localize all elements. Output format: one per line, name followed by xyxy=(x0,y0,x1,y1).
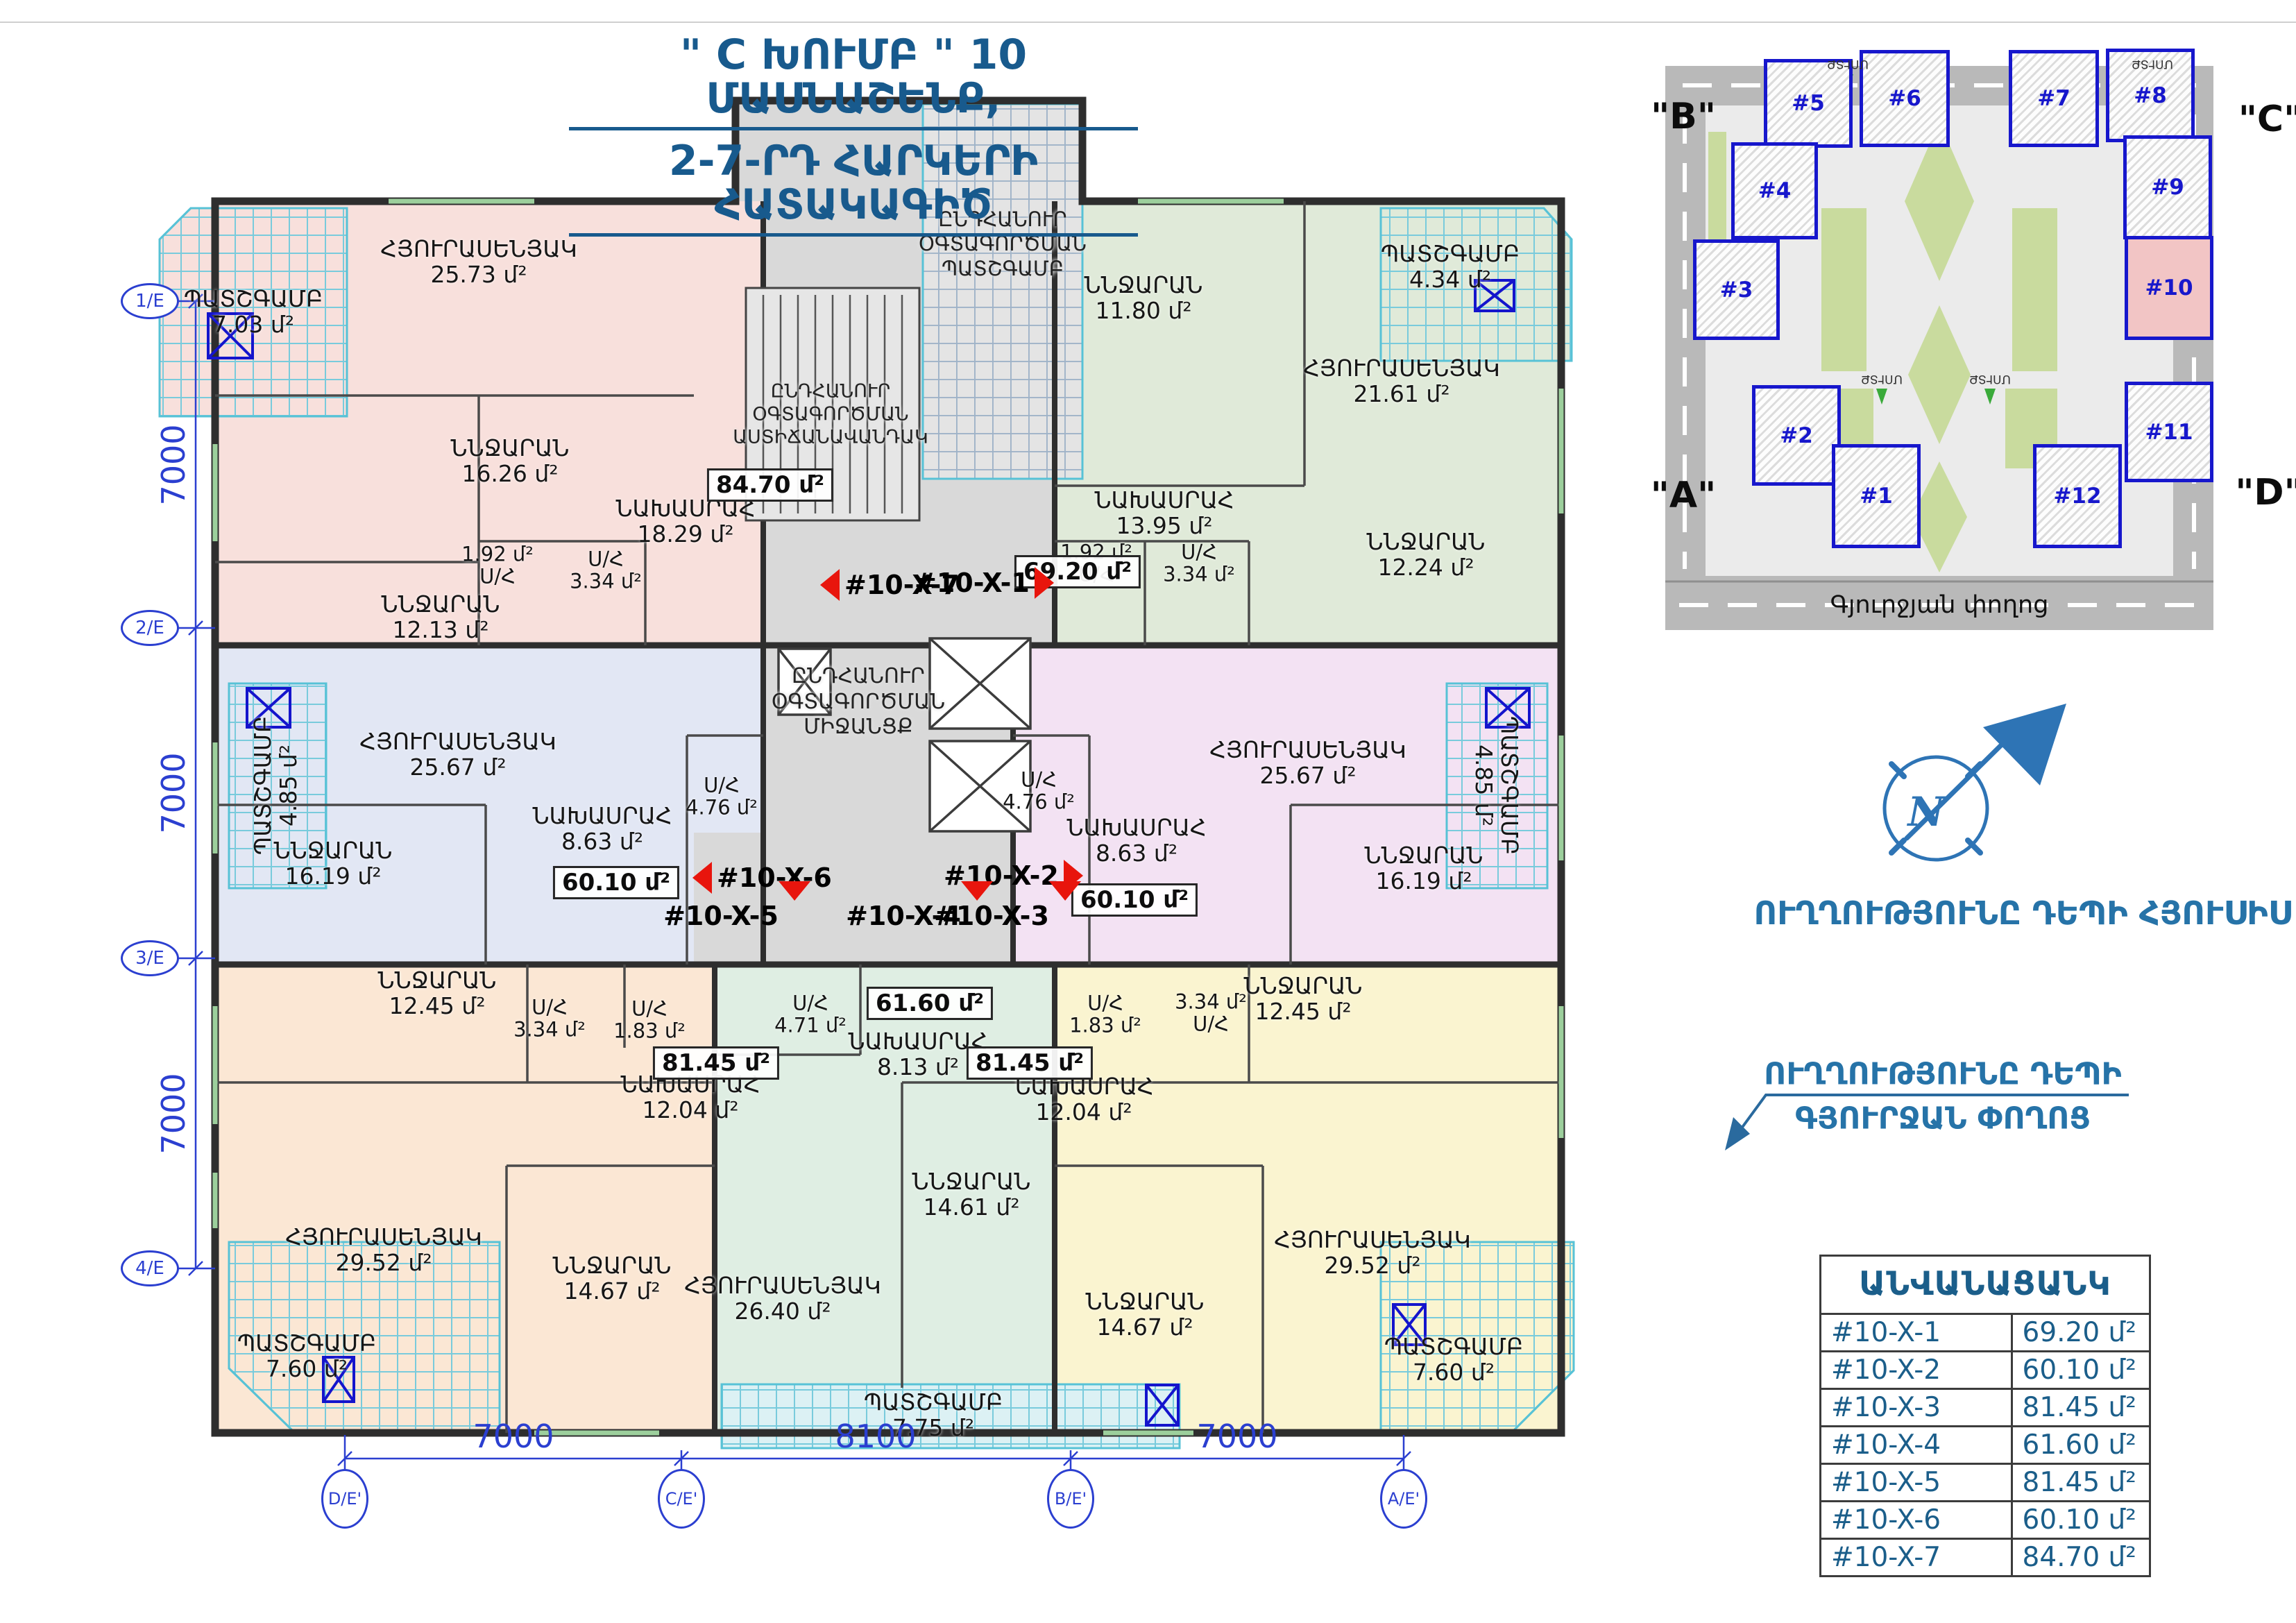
room-label: Ս/Հ1.83 մ² xyxy=(1069,992,1141,1037)
room-label: ՆՆՋԱՐԱՆ12.45 մ² xyxy=(1244,974,1363,1025)
dimension-label: 7000 xyxy=(473,1418,554,1455)
legend-apartment-id: #10-X-2 xyxy=(1821,1352,2012,1389)
room-label: ՊԱՏՇԳԱՄԲ7.60 մ² xyxy=(237,1331,376,1382)
room-label: ՊԱՏՇԳԱՄԲ4.85 մ² xyxy=(250,716,302,855)
north-direction-note: ՈՒՂՂՈՒԹՅՈՒՆԸ ԴԵՊԻ ՀՅՈՒՍԻՍ xyxy=(1754,894,2292,932)
apartment-total-area: 81.45 մ² xyxy=(967,1046,1093,1080)
room-label: Ս/Հ3.34 մ² xyxy=(570,548,642,593)
entrance-label: ՄՈՒՏՔ xyxy=(1861,372,1903,386)
room-label: ՆԱԽԱՍՐԱՀ8.63 մ² xyxy=(1067,815,1207,867)
axis-bubble: 3/E xyxy=(121,940,179,976)
site-building-5: #5 xyxy=(1764,59,1853,148)
arrow-down-icon xyxy=(779,881,810,931)
floor-plan-sheet: { "title": { "line1": "\" C ԽՈՒՄԲ \" 10 … xyxy=(0,0,2296,1623)
legend-apartment-area: 60.10 մ² xyxy=(2012,1502,2150,1539)
apartment-total-area: 60.10 մ² xyxy=(553,866,679,899)
sheet-title-line2: 2-7-ՐԴ ՀԱՐԿԵՐԻ ՀԱՏԱԿԱԳԻԾ xyxy=(569,139,1138,237)
entrance-label: ՄՈՒՏՔ xyxy=(1827,57,1869,71)
room-label: ՀՅՈՒՐԱՍԵՆՅԱԿ29.52 մ² xyxy=(285,1225,482,1276)
legend-row: #10-X-784.70 մ² xyxy=(1821,1539,2150,1577)
room-label: ՆՆՋԱՐԱՆ12.24 մ² xyxy=(1367,529,1486,581)
axis-bubble: A/E' xyxy=(1380,1469,1427,1529)
apartment-marker-x5: #10-X-5 xyxy=(663,901,810,931)
room-label: ՆՆՋԱՐԱՆ11.80 մ² xyxy=(1085,273,1203,324)
apartment-total-area: 84.70 մ² xyxy=(707,468,833,502)
room-label: ՆՆՋԱՐԱՆ16.19 մ² xyxy=(274,838,393,890)
legend-apartment-id: #10-X-1 xyxy=(1821,1314,2012,1352)
site-building-6: #6 xyxy=(1860,50,1950,147)
room-label: ՆՆՋԱՐԱՆ16.19 մ² xyxy=(1365,843,1483,894)
room-label: ՆՆՋԱՐԱՆ14.61 մ² xyxy=(912,1169,1031,1221)
room-label: ՊԱՏՇԳԱՄԲ7.03 մ² xyxy=(184,287,323,338)
room-label: Ս/Հ4.76 մ² xyxy=(686,774,758,819)
legend-row: #10-X-660.10 մ² xyxy=(1821,1502,2150,1539)
site-building-1: #1 xyxy=(1832,444,1921,548)
sheet-title: " C ԽՈՒՄԲ " 10 ՄԱՍՆԱՇԵՆՔ, 2-7-ՐԴ ՀԱՐԿԵՐԻ… xyxy=(569,33,1138,246)
compass-n-letter: N xyxy=(1906,788,1946,835)
room-label: Ս/Հ4.76 մ² xyxy=(1003,769,1075,814)
site-building-4: #4 xyxy=(1731,142,1818,239)
site-building-2: #2 xyxy=(1752,385,1841,486)
apartment-legend-table: ԱՆՎԱՆԱՑԱՆԿ #10-X-169.20 մ² #10-X-260.10 … xyxy=(1819,1255,2151,1577)
legend-apartment-area: 60.10 մ² xyxy=(2012,1352,2150,1389)
axis-bubble: 2/E xyxy=(121,610,179,646)
room-label: ՀՅՈՒՐԱՍԵՆՅԱԿ21.61 մ² xyxy=(1303,356,1500,407)
legend-apartment-area: 61.60 մ² xyxy=(2012,1427,2150,1464)
room-label: ՆՆՋԱՐԱՆ14.67 մ² xyxy=(1086,1289,1205,1341)
room-label: ՀՅՈՒՐԱՍԵՆՅԱԿ25.67 մ² xyxy=(359,729,556,781)
apartment-total-area: 61.60 մ² xyxy=(867,987,993,1020)
room-label: Ս/Հ1.83 մ² xyxy=(613,998,686,1043)
axis-bubble: 4/E xyxy=(121,1250,179,1286)
site-building-9: #9 xyxy=(2123,135,2212,239)
room-label: Ս/Հ4.71 մ² xyxy=(774,992,847,1037)
legend-row: #10-X-169.20 մ² xyxy=(1821,1314,2150,1352)
room-label: ՆՆՋԱՐԱՆ14.67 մ² xyxy=(553,1253,672,1305)
axis-bubble: C/E' xyxy=(658,1469,705,1529)
legend-row: #10-X-381.45 մ² xyxy=(1821,1389,2150,1427)
room-label: ՊԱՏՇԳԱՄԲ7.60 մ² xyxy=(1384,1334,1523,1386)
axis-bubble: B/E' xyxy=(1047,1469,1094,1529)
legend-apartment-area: 81.45 մ² xyxy=(2012,1464,2150,1502)
compass-icon: N xyxy=(1885,704,2066,860)
site-building-12: #12 xyxy=(2033,444,2122,548)
legend-apartment-area: 81.45 մ² xyxy=(2012,1389,2150,1427)
room-label: ՆՆՋԱՐԱՆ12.45 մ² xyxy=(378,968,497,1019)
entrance-label: ՄՈՒՏՔ xyxy=(2132,57,2173,71)
room-label: Ս/Հ3.34 մ² xyxy=(513,996,586,1042)
site-building-11: #11 xyxy=(2125,382,2213,482)
apartment-marker-x1: #10-X-1 xyxy=(915,567,1054,599)
entrance-label: ՄՈՒՏՔ xyxy=(1969,372,2011,386)
apartment-total-area: 60.10 մ² xyxy=(1071,883,1198,917)
room-label: Ս/Հ3.34 մ² xyxy=(1163,541,1235,586)
room-label: Ս/Հ1.92 մ² xyxy=(461,543,534,588)
sheet-title-line1: " C ԽՈՒՄԲ " 10 ՄԱՍՆԱՇԵՆՔ, xyxy=(569,33,1138,130)
room-label: ՆԱԽԱՍՐԱՀ18.29 մ² xyxy=(616,496,756,547)
dimension-label: 7000 xyxy=(1196,1418,1277,1455)
common-stairs-label: ԸՆԴՀԱՆՈՒՐ ՕԳՏԱԳՈՐԾՄԱՆ ԱՍՏԻՃԱՆԱՎԱՆԴԱԿ xyxy=(733,381,928,450)
room-label: ՊԱՏՇԳԱՄԲ4.85 մ² xyxy=(1470,716,1522,855)
street-direction-note-line1: ՈՒՂՂՈՒԹՅՈՒՆԸ ԴԵՊԻ xyxy=(1764,1057,2122,1092)
site-building-10-highlighted: #10 xyxy=(2125,236,2213,340)
room-label: ՀՅՈՒՐԱՍԵՆՅԱԿ25.67 մ² xyxy=(1209,738,1406,789)
room-label: ՆՆՋԱՐԱՆ12.13 մ² xyxy=(382,592,500,643)
dimension-label: 8100 xyxy=(835,1418,916,1455)
common-corridor-label: ԸՆԴՀԱՆՈՒՐ ՕԳՏԱԳՈՐԾՄԱՆ ՄԻՋԱՆՑՔ xyxy=(772,664,945,740)
legend-row: #10-X-260.10 մ² xyxy=(1821,1352,2150,1389)
legend-row: #10-X-581.45 մ² xyxy=(1821,1464,2150,1502)
legend-apartment-area: 84.70 մ² xyxy=(2012,1539,2150,1577)
axis-bubble: D/E' xyxy=(321,1469,368,1529)
site-building-3: #3 xyxy=(1693,239,1780,340)
dimension-label: 7000 xyxy=(155,424,192,505)
legend-apartment-id: #10-X-6 xyxy=(1821,1502,2012,1539)
legend-apartment-id: #10-X-5 xyxy=(1821,1464,2012,1502)
room-label: Ս/Հ3.34 մ² xyxy=(1175,991,1247,1036)
room-label: ՀՅՈՒՐԱՍԵՆՅԱԿ26.40 մ² xyxy=(684,1273,881,1325)
dimension-label: 7000 xyxy=(155,752,192,833)
room-label: ՆԱԽԱՍՐԱՀ12.04 մ² xyxy=(1014,1074,1154,1125)
legend-apartment-id: #10-X-3 xyxy=(1821,1389,2012,1427)
arrow-left-icon xyxy=(820,569,840,601)
room-label: ՀՅՈՒՐԱՍԵՆՅԱԿ25.73 մ² xyxy=(380,237,577,288)
district-label-a: "A" xyxy=(1651,475,1716,516)
apartment-marker-x3: #10-X-3 xyxy=(934,901,1081,931)
arrow-down-icon xyxy=(1049,881,1081,931)
legend-apartment-area: 69.20 մ² xyxy=(2012,1314,2150,1352)
apartment-marker-x6: #10-X-6 xyxy=(692,862,832,894)
street-direction-note-line2: ԳՅՈՒՐՋԱՆ ՓՈՂՈՑ xyxy=(1795,1101,2091,1137)
north-arrow-icon xyxy=(1983,704,2066,785)
room-label: ՆԱԽԱՍՐԱՀ12.04 մ² xyxy=(621,1072,760,1123)
street-name-label: Գյուրջյան փողոց xyxy=(1830,591,2049,619)
district-label-d: "D" xyxy=(2235,472,2296,513)
legend-table-title: ԱՆՎԱՆԱՑԱՆԿ xyxy=(1821,1256,2150,1314)
room-label: ՆՆՋԱՐԱՆ16.26 մ² xyxy=(451,436,570,487)
arrow-right-icon xyxy=(1035,567,1054,599)
district-label-c: "C" xyxy=(2238,99,2296,140)
district-label-b: "B" xyxy=(1651,96,1716,137)
dimension-label: 7000 xyxy=(155,1073,192,1154)
room-label: ՀՅՈՒՐԱՍԵՆՅԱԿ29.52 մ² xyxy=(1274,1227,1471,1279)
arrow-left-icon xyxy=(692,862,712,894)
room-label: ՆԱԽԱՍՐԱՀ8.63 մ² xyxy=(533,804,672,855)
room-label: ՊԱՏՇԳԱՄԲ4.34 մ² xyxy=(1381,241,1520,293)
site-building-7: #7 xyxy=(2009,50,2099,147)
legend-apartment-id: #10-X-4 xyxy=(1821,1427,2012,1464)
apartment-total-area: 81.45 մ² xyxy=(653,1046,779,1080)
room-label: ՆԱԽԱՍՐԱՀ13.95 մ² xyxy=(1095,488,1234,539)
legend-apartment-id: #10-X-7 xyxy=(1821,1539,2012,1577)
legend-row: #10-X-461.60 մ² xyxy=(1821,1427,2150,1464)
axis-bubble: 1/E xyxy=(121,283,179,319)
